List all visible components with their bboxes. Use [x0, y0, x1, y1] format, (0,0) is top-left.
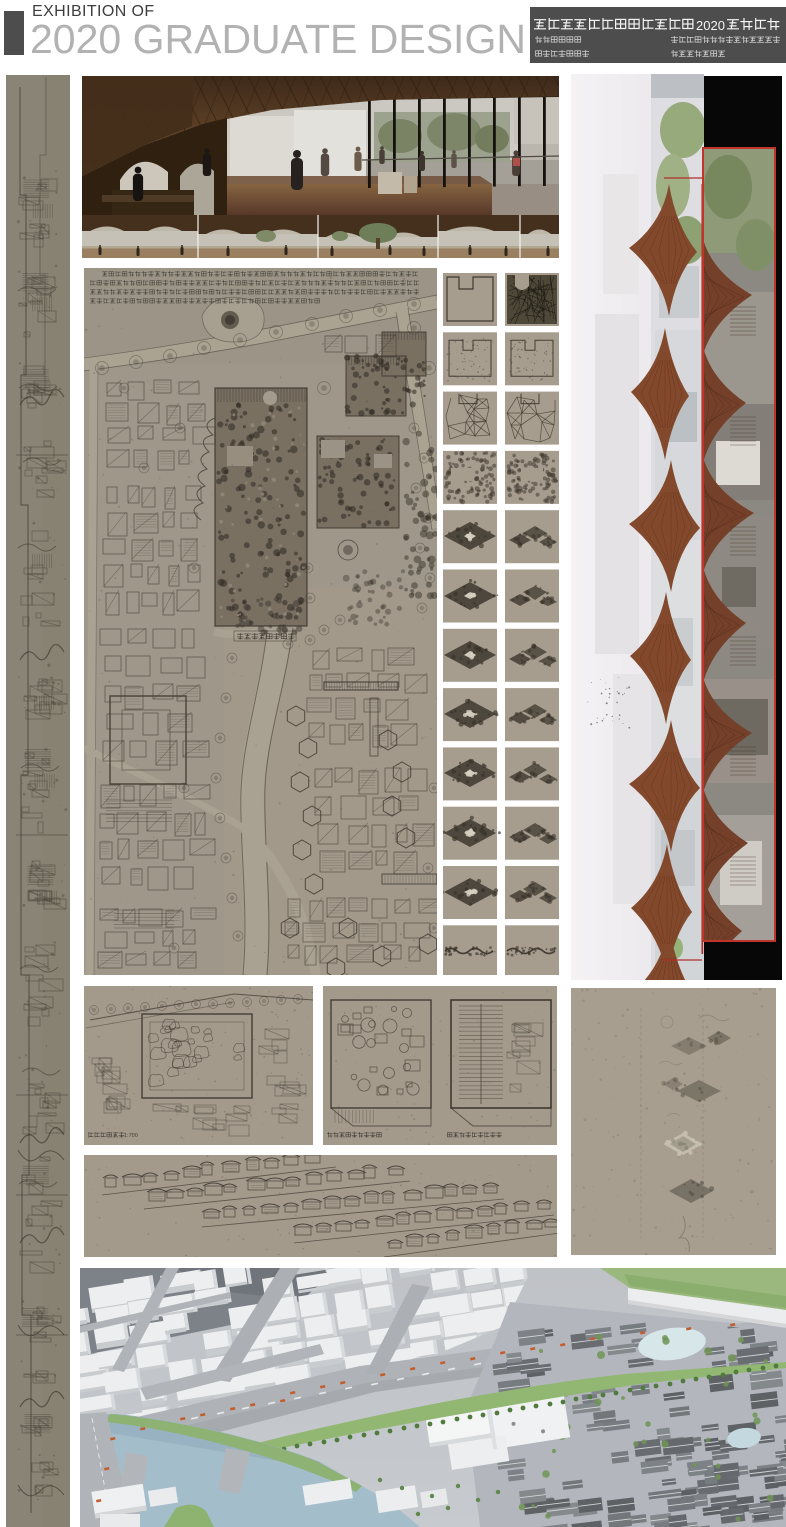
- svg-text:1:700: 1:700: [124, 1133, 138, 1139]
- svg-text:2020: 2020: [696, 18, 725, 33]
